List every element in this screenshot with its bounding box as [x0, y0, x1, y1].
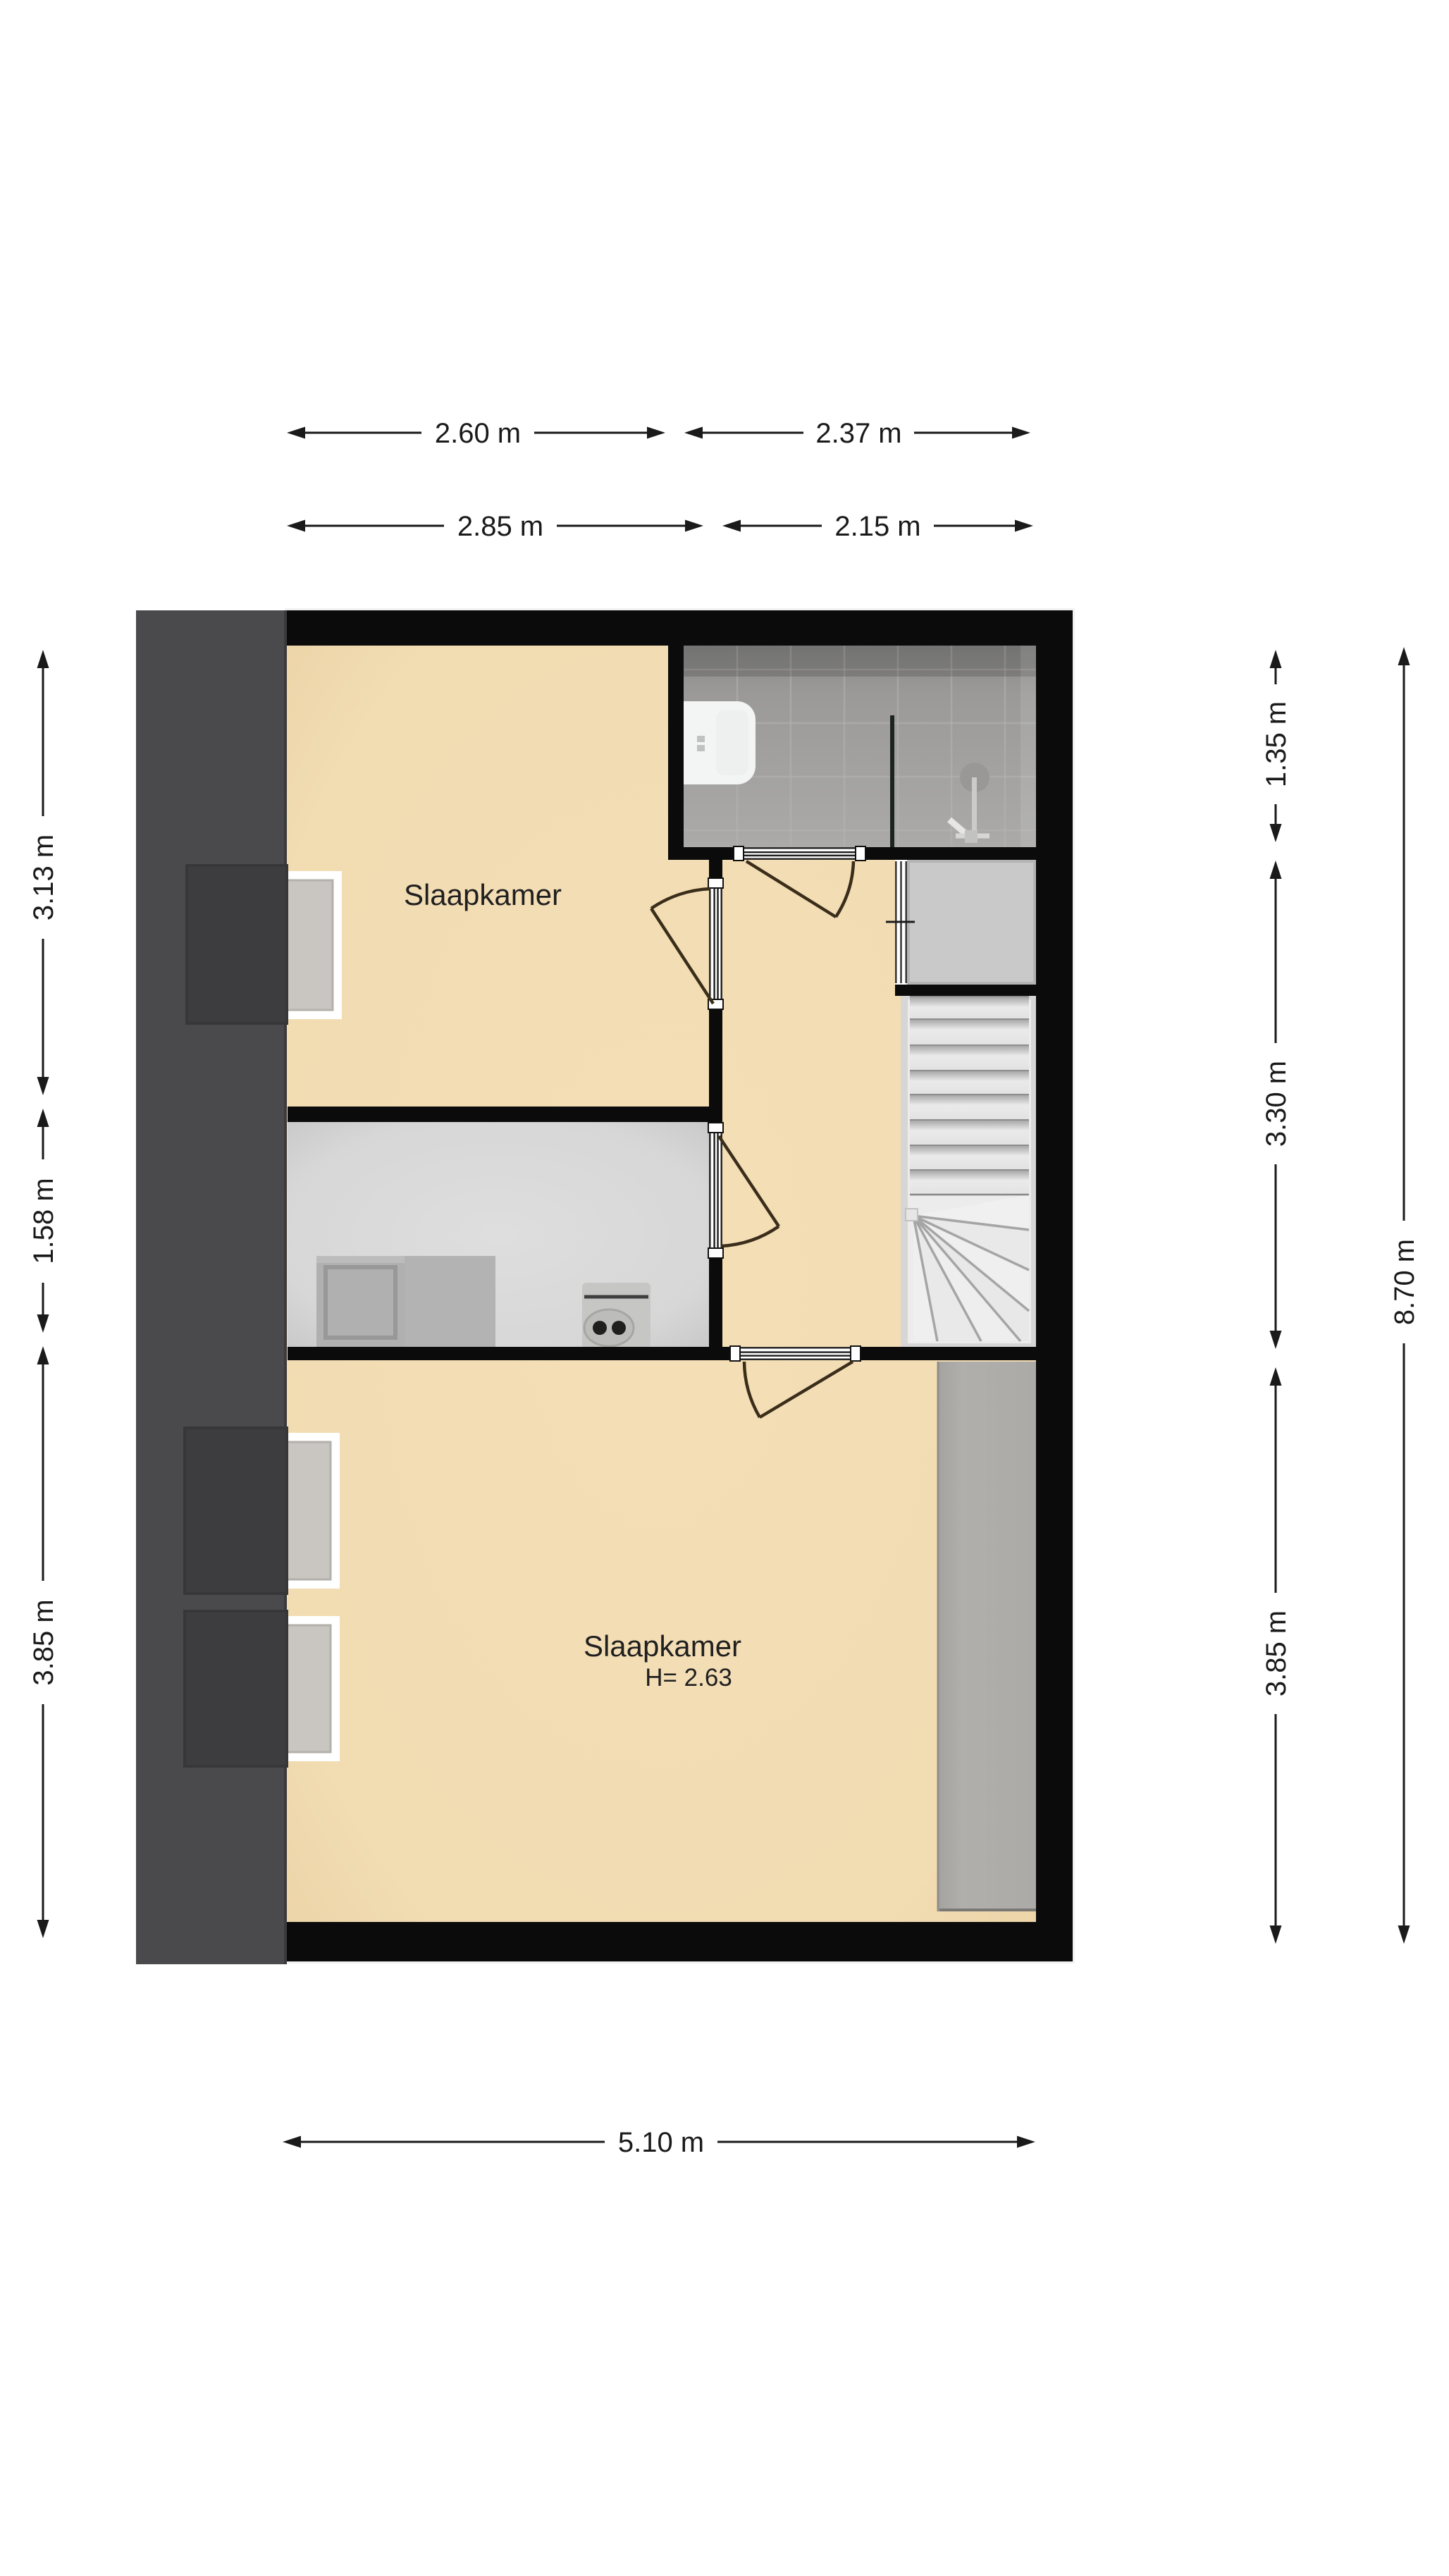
svg-text:Slaapkamer: Slaapkamer [584, 1629, 741, 1663]
svg-text:1.35 m: 1.35 m [1261, 701, 1292, 787]
svg-text:3.13 m: 3.13 m [28, 834, 59, 920]
svg-text:3.30 m: 3.30 m [1261, 1061, 1292, 1147]
svg-text:3.85 m: 3.85 m [1261, 1610, 1292, 1696]
svg-text:2.37 m: 2.37 m [815, 418, 901, 449]
svg-text:3.85 m: 3.85 m [28, 1599, 59, 1685]
svg-text:5.10 m: 5.10 m [618, 2127, 704, 2158]
svg-text:1.58 m: 1.58 m [28, 1178, 59, 1264]
svg-text:2.85 m: 2.85 m [457, 511, 543, 542]
svg-text:Slaapkamer: Slaapkamer [404, 878, 562, 911]
svg-text:8.70 m: 8.70 m [1389, 1239, 1420, 1325]
svg-text:2.15 m: 2.15 m [834, 511, 920, 542]
svg-text:H= 2.63: H= 2.63 [645, 1664, 732, 1691]
svg-text:2.60 m: 2.60 m [435, 418, 521, 449]
